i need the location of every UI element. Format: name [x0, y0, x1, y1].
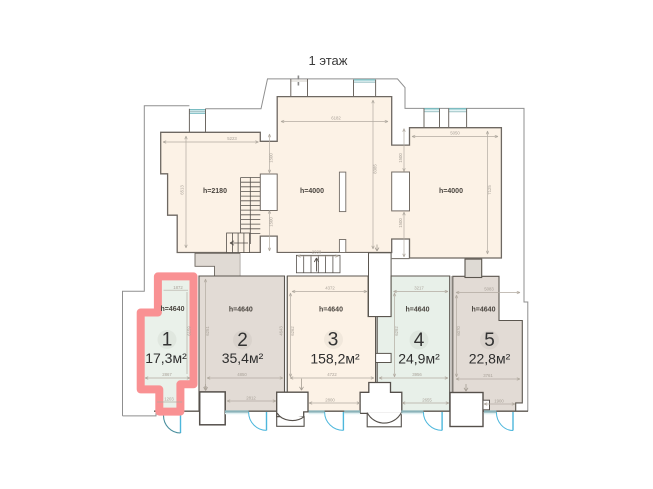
svg-text:2038: 2038	[312, 250, 322, 255]
svg-text:h=2180: h=2180	[203, 188, 227, 195]
svg-text:5: 5	[484, 330, 495, 351]
svg-text:1500: 1500	[269, 217, 274, 227]
svg-text:2867: 2867	[162, 372, 172, 377]
svg-text:5083: 5083	[484, 287, 494, 292]
svg-text:3: 3	[328, 330, 339, 351]
svg-text:6159: 6159	[187, 326, 192, 336]
svg-text:2812: 2812	[246, 396, 256, 401]
svg-text:h=4000: h=4000	[300, 188, 324, 195]
svg-text:22,8м²: 22,8м²	[469, 351, 511, 367]
svg-text:6251: 6251	[205, 326, 210, 336]
svg-text:5223: 5223	[227, 136, 237, 141]
svg-text:3217: 3217	[414, 286, 424, 291]
svg-text:4643: 4643	[279, 326, 284, 336]
svg-text:7125: 7125	[487, 185, 492, 195]
svg-text:h=4640: h=4640	[406, 307, 430, 314]
svg-text:3956: 3956	[412, 372, 422, 377]
svg-text:3761: 3761	[483, 373, 493, 378]
svg-text:6070: 6070	[456, 326, 461, 336]
svg-text:2: 2	[237, 330, 248, 351]
svg-text:24,9м²: 24,9м²	[398, 351, 440, 367]
svg-text:h=4640: h=4640	[161, 306, 185, 313]
svg-text:6262: 6262	[290, 326, 295, 336]
svg-text:h=4640: h=4640	[472, 307, 496, 314]
svg-text:6513: 6513	[180, 185, 185, 195]
svg-text:4372: 4372	[325, 286, 335, 291]
svg-text:1872: 1872	[173, 285, 183, 290]
svg-text:1203: 1203	[164, 397, 174, 402]
svg-text:1: 1	[162, 330, 173, 351]
svg-text:1500: 1500	[398, 218, 403, 228]
svg-text:1 этаж: 1 этаж	[309, 53, 348, 68]
svg-text:158,2м²: 158,2м²	[310, 351, 360, 367]
svg-text:h=4640: h=4640	[319, 307, 343, 314]
svg-text:35,4м²: 35,4м²	[222, 350, 264, 366]
svg-text:17,3м²: 17,3м²	[145, 350, 187, 366]
svg-text:4850: 4850	[237, 372, 247, 377]
svg-text:1500: 1500	[398, 153, 403, 163]
svg-text:6182: 6182	[331, 116, 341, 121]
svg-text:4: 4	[414, 330, 425, 351]
svg-text:5050: 5050	[450, 131, 460, 136]
svg-text:1500: 1500	[269, 153, 274, 163]
svg-text:4722: 4722	[327, 372, 337, 377]
svg-text:1900: 1900	[494, 399, 504, 404]
svg-text:h=4640: h=4640	[229, 307, 253, 314]
svg-text:8385: 8385	[373, 164, 378, 174]
svg-text:h=4000: h=4000	[439, 188, 463, 195]
svg-text:2800: 2800	[325, 398, 335, 403]
svg-text:2655: 2655	[422, 398, 432, 403]
svg-text:6292: 6292	[394, 326, 399, 336]
